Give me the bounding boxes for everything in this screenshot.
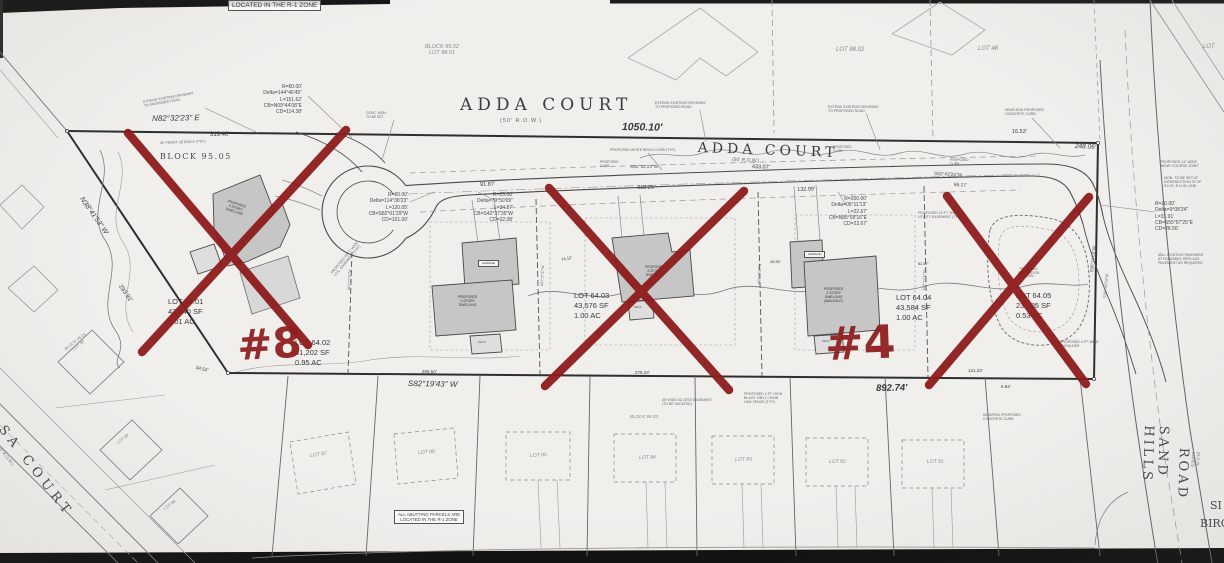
red-x-lot1-leg2 bbox=[142, 130, 346, 352]
red-x-annotations bbox=[0, 0, 1224, 563]
site-plan-screenshot: LOCATED IN THE R-1 ZONEBLOCK 95.02 LOT 8… bbox=[0, 0, 1224, 563]
red-x-lot1-leg1 bbox=[128, 133, 308, 345]
